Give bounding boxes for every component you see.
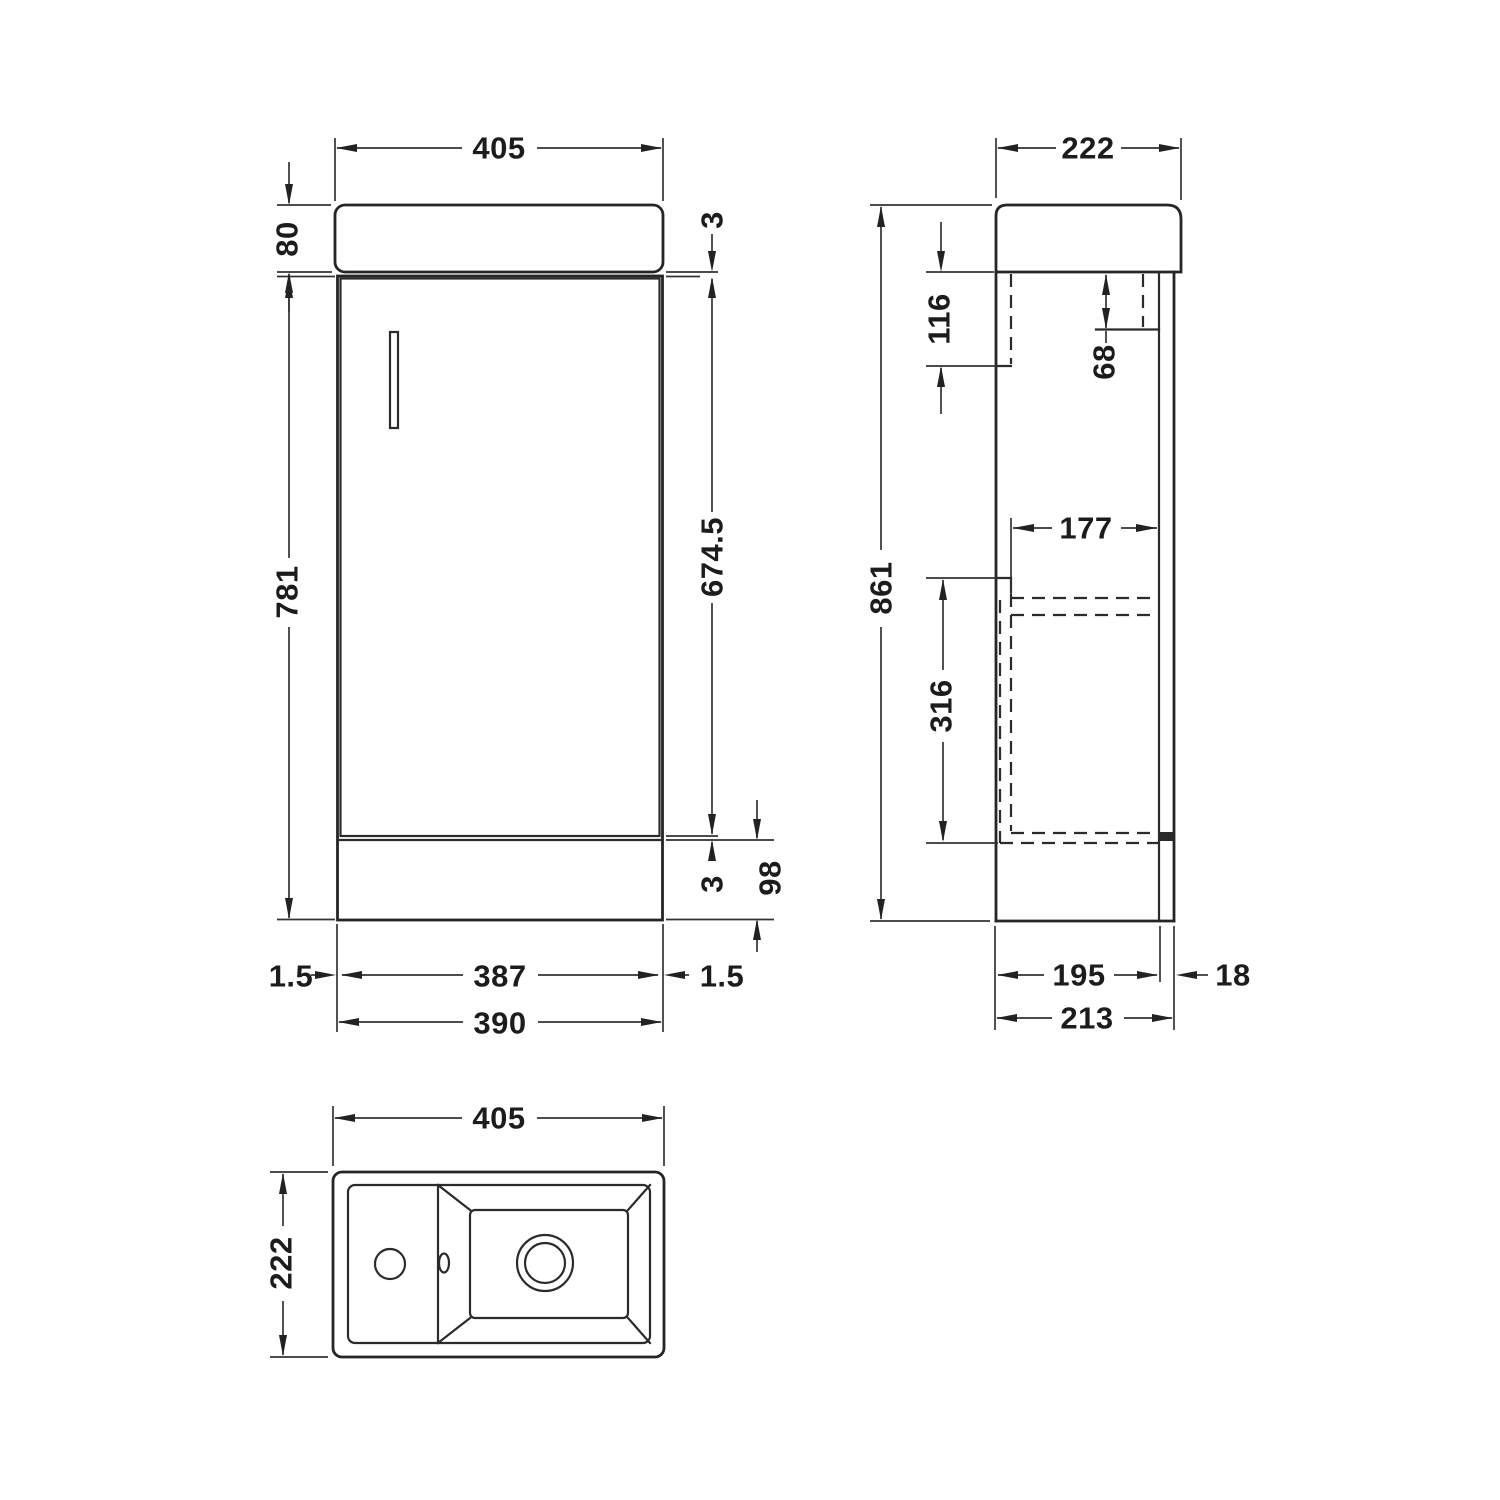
side-internal-depth-dim: 177 <box>1059 511 1112 546</box>
front-door-width-dim: 387 <box>473 959 526 994</box>
side-left-bracket-dim: 116 <box>922 293 957 345</box>
plan-bowl-bevel-br <box>628 1318 650 1343</box>
side-internal-height-dim: 316 <box>924 679 959 732</box>
side-dimension-labels: 222 861 116 68 177 316 195 18 213 <box>864 131 1251 1036</box>
front-basin-height-dim: 80 <box>270 221 305 256</box>
plan-width-dim: 405 <box>472 1101 525 1136</box>
front-view-outline <box>335 205 663 920</box>
front-top-gap-dim: 3 <box>695 211 730 229</box>
plan-dimension-lines <box>283 1118 662 1355</box>
technical-drawing: 405 80 781 3 674.5 3 98 1.5 387 1.5 390 <box>0 0 1500 1500</box>
plan-depth-dim: 222 <box>264 1236 299 1289</box>
side-top-depth-dim: 222 <box>1061 131 1114 166</box>
side-body-depth-dim: 195 <box>1052 958 1105 993</box>
plan-bowl-inner <box>470 1210 628 1318</box>
side-back-panel-dim: 18 <box>1215 958 1250 993</box>
side-total-height-dim: 861 <box>864 561 899 614</box>
plan-basin-rim <box>348 1185 650 1343</box>
plan-tap-hole <box>375 1249 405 1279</box>
front-base-width-dim: 390 <box>473 1006 526 1041</box>
side-view-outline <box>996 205 1181 921</box>
plan-view: 405 222 <box>264 1101 665 1358</box>
plan-basin-outer <box>333 1172 664 1357</box>
side-base-section-block <box>1159 832 1174 841</box>
plan-bowl-bevel-bl <box>438 1318 470 1343</box>
plan-bowl-bevel-tl <box>438 1185 470 1210</box>
side-arrowheads <box>877 144 1197 1022</box>
plan-bowl-bevel-tr <box>628 1185 650 1210</box>
front-bottom-gap-dim: 3 <box>695 875 730 893</box>
side-basin <box>996 205 1181 272</box>
front-door-handle <box>390 332 398 428</box>
front-basin <box>335 205 663 272</box>
front-door-height-dim: 674.5 <box>695 517 730 597</box>
front-cabinet <box>338 276 663 920</box>
front-left-gap-dim: 1.5 <box>269 959 314 994</box>
front-view: 405 80 781 3 674.5 3 98 1.5 387 1.5 390 <box>269 131 788 1041</box>
plan-overflow-hole <box>439 1254 449 1273</box>
front-plinth-height-dim: 98 <box>753 860 788 895</box>
plan-view-outline <box>333 1172 664 1357</box>
front-dimension-labels: 405 80 781 3 674.5 3 98 1.5 387 1.5 390 <box>269 131 788 1041</box>
front-cabinet-height-dim: 781 <box>270 565 305 618</box>
front-right-gap-dim: 1.5 <box>700 959 745 994</box>
side-base-depth-dim: 213 <box>1060 1001 1113 1036</box>
side-view: 222 861 116 68 177 316 195 18 213 <box>864 131 1251 1036</box>
plan-dimension-labels: 405 222 <box>264 1101 526 1290</box>
plan-drain-inner <box>525 1243 565 1283</box>
front-top-width-dim: 405 <box>472 131 525 166</box>
front-door <box>341 279 660 837</box>
side-right-bracket-dim: 68 <box>1087 344 1122 379</box>
